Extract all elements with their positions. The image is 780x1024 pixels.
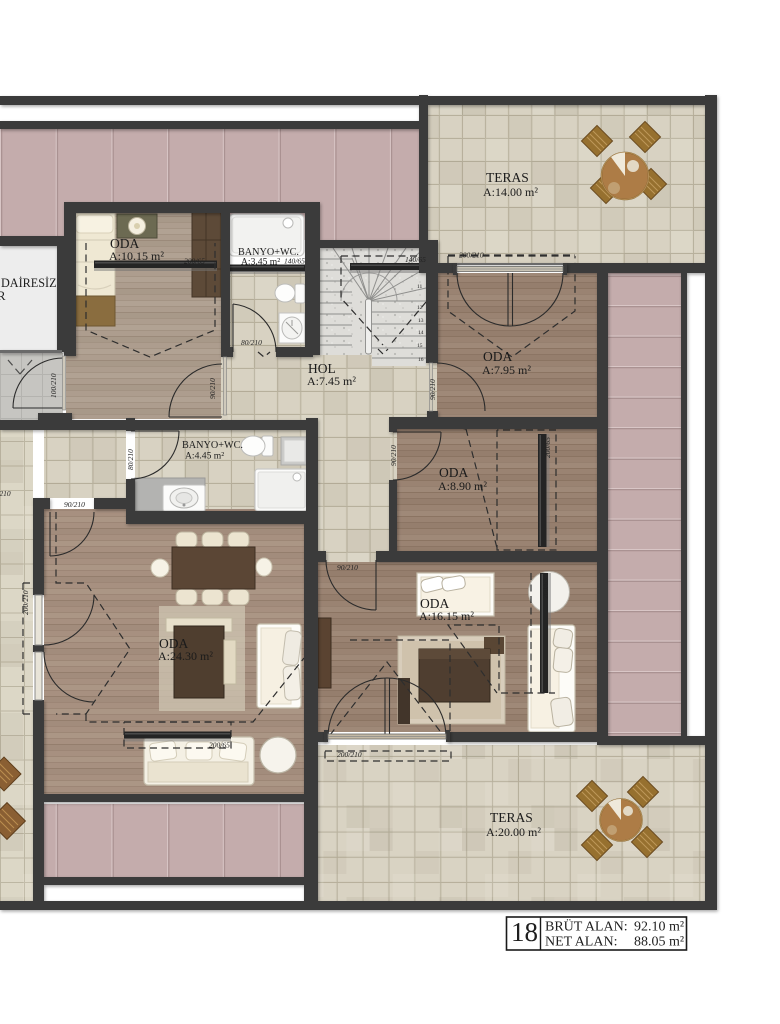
svg-text:NET ALAN:: NET ALAN: (545, 935, 617, 950)
svg-text:A:20.00 m²: A:20.00 m² (486, 825, 541, 839)
svg-text:12: 12 (417, 305, 423, 311)
svg-text:11: 11 (417, 284, 423, 290)
svg-text:80/210: 80/210 (126, 449, 135, 470)
svg-text:A:16.15 m²: A:16.15 m² (419, 609, 474, 623)
svg-text:13: 13 (418, 318, 424, 324)
svg-text:A:7.45 m²: A:7.45 m² (307, 374, 356, 388)
svg-text:A:3.45 m²: A:3.45 m² (241, 257, 280, 268)
svg-text:15: 15 (417, 343, 423, 349)
svg-text:90/210: 90/210 (389, 445, 398, 466)
svg-text:TERAS: TERAS (490, 810, 533, 825)
svg-text:140/65: 140/65 (284, 257, 305, 266)
svg-text:R: R (0, 289, 6, 303)
svg-text:92.10 m²: 92.10 m² (634, 920, 684, 935)
svg-text:200/65: 200/65 (209, 741, 230, 750)
svg-text:90/210: 90/210 (337, 563, 358, 572)
svg-text:14: 14 (418, 330, 424, 336)
svg-text:A:7.95 m²: A:7.95 m² (482, 363, 531, 377)
svg-text:ODA: ODA (483, 349, 512, 364)
svg-text:A:8.90 m²: A:8.90 m² (438, 479, 487, 493)
svg-text:A:4.45 m²: A:4.45 m² (185, 451, 224, 462)
svg-text:18: 18 (511, 917, 538, 947)
svg-text:90/210: 90/210 (208, 378, 217, 399)
svg-text:200/210: 200/210 (459, 251, 484, 260)
svg-text:200/210: 200/210 (21, 590, 30, 615)
svg-text:200/210: 200/210 (337, 750, 362, 759)
svg-text:BANYO+WC.: BANYO+WC. (182, 440, 243, 451)
svg-text:100/210: 100/210 (49, 373, 58, 398)
svg-text:200/65: 200/65 (184, 257, 205, 266)
svg-text:DAİRESİZ: DAİRESİZ (1, 276, 57, 290)
svg-text:200/65: 200/65 (541, 578, 550, 599)
svg-text:80/210: 80/210 (241, 338, 262, 347)
svg-text:A:24.30 m²: A:24.30 m² (158, 649, 213, 663)
svg-text:140/65: 140/65 (405, 255, 426, 264)
svg-text:90/210: 90/210 (64, 500, 85, 509)
svg-text:90/210: 90/210 (428, 379, 437, 400)
svg-text:A:14.00 m²: A:14.00 m² (483, 185, 538, 199)
svg-text:200/210: 200/210 (0, 489, 11, 498)
svg-text:16: 16 (418, 357, 424, 363)
svg-text:BRÜT ALAN:: BRÜT ALAN: (545, 918, 628, 935)
svg-text:200/65: 200/65 (543, 437, 552, 458)
svg-text:88.05 m²: 88.05 m² (634, 935, 684, 950)
svg-text:ODA: ODA (439, 465, 468, 480)
svg-text:TERAS: TERAS (486, 170, 529, 185)
svg-text:A:10.15 m²: A:10.15 m² (109, 249, 164, 263)
